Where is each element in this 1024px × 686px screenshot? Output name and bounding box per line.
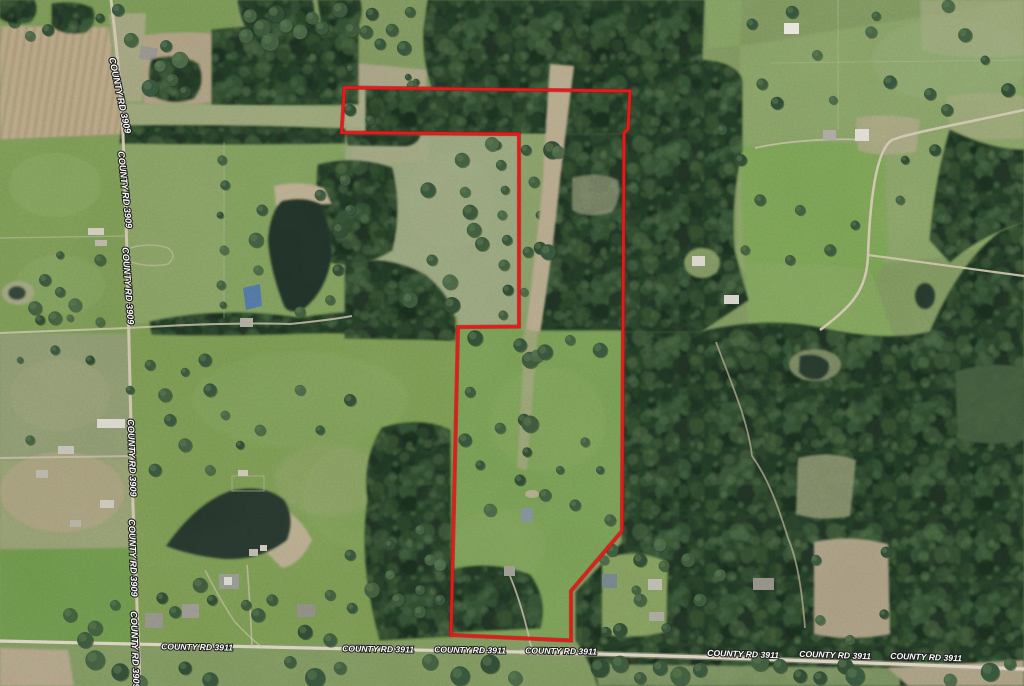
svg-text:COUNTY RD 3911: COUNTY RD 3911 (342, 643, 414, 654)
svg-text:COUNTY RD 3911: COUNTY RD 3911 (434, 644, 506, 655)
svg-text:COUNTY RD 3911: COUNTY RD 3911 (525, 645, 597, 656)
svg-text:COUNTY RD 3911: COUNTY RD 3911 (161, 641, 233, 652)
